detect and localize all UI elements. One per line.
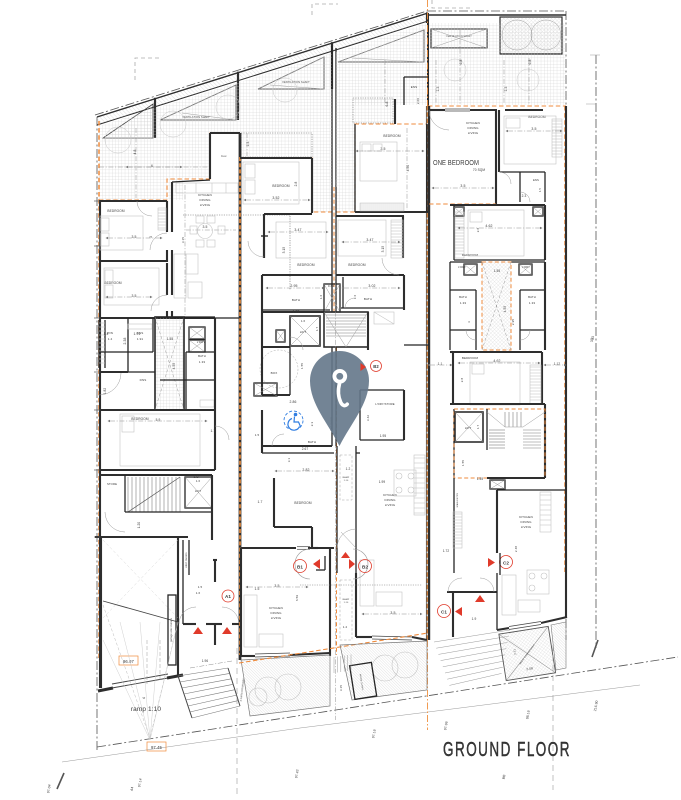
svg-text:1.91: 1.91: [134, 332, 141, 336]
svg-text:1.1: 1.1: [438, 362, 443, 366]
svg-text:GROUND FLOOR: GROUND FLOOR: [443, 739, 571, 761]
svg-text:3.5: 3.5: [460, 184, 465, 188]
svg-text:1.7: 1.7: [476, 425, 480, 430]
svg-text:2.95: 2.95: [290, 284, 297, 288]
svg-text:1.12: 1.12: [554, 362, 561, 366]
svg-text:BEDROOM: BEDROOM: [383, 134, 400, 138]
svg-text:3.15: 3.15: [181, 237, 185, 243]
svg-text:1.33: 1.33: [199, 360, 205, 364]
svg-text:A4: A4: [130, 786, 135, 791]
svg-text:RAMP: RAMP: [343, 476, 350, 479]
svg-text:4.50: 4.50: [406, 165, 410, 172]
svg-text:ramp 1:10: ramp 1:10: [131, 706, 161, 713]
svg-text:1.55: 1.55: [477, 477, 484, 481]
svg-text:1.2: 1.2: [346, 467, 351, 471]
svg-text:BOX: BOX: [271, 371, 278, 375]
svg-text:BATH: BATH: [459, 295, 467, 299]
svg-text:4.62: 4.62: [485, 224, 492, 228]
svg-text:1.2: 1.2: [343, 625, 348, 629]
svg-text:1.55: 1.55: [167, 337, 174, 341]
svg-text:DINING: DINING: [384, 498, 396, 502]
svg-text:3.5: 3.5: [202, 225, 207, 229]
svg-text:3.5: 3.5: [131, 235, 136, 239]
svg-text:1.95: 1.95: [380, 434, 387, 438]
svg-text:BEDROOM: BEDROOM: [107, 209, 124, 213]
svg-text:elect meters: elect meters: [184, 552, 188, 568]
svg-text:1.6: 1.6: [196, 591, 201, 595]
svg-text:6.8: 6.8: [385, 101, 389, 106]
svg-text:6.59: 6.59: [295, 595, 299, 601]
svg-text:1.3: 1.3: [504, 86, 508, 91]
svg-text:1:10: 1:10: [344, 602, 349, 604]
svg-text:1:10: 1:10: [344, 480, 349, 482]
svg-text:3: 3: [467, 321, 471, 323]
svg-text:3.15: 3.15: [381, 246, 385, 253]
svg-text:4.55: 4.55: [503, 306, 507, 313]
svg-text:6: 6: [151, 164, 153, 168]
svg-text:2.8: 2.8: [460, 378, 464, 383]
svg-text:DINING: DINING: [467, 126, 479, 130]
svg-text:4.8: 4.8: [133, 149, 137, 154]
svg-text:96.97: 96.97: [123, 659, 135, 664]
svg-text:BATH: BATH: [308, 440, 316, 444]
svg-text:2.38: 2.38: [123, 337, 127, 344]
svg-text:3.42: 3.42: [366, 415, 370, 421]
svg-text:KITCHEN: KITCHEN: [519, 515, 533, 519]
svg-text:33: 33: [590, 338, 594, 342]
svg-text:6.8: 6.8: [459, 59, 463, 64]
svg-text:LIVING: LIVING: [468, 131, 479, 135]
svg-text:DINING: DINING: [199, 198, 211, 202]
svg-text:LIVING: LIVING: [385, 503, 396, 507]
svg-text:BEDROOM: BEDROOM: [528, 115, 545, 119]
svg-text:LIFT: LIFT: [465, 426, 472, 430]
svg-text:3.02: 3.02: [368, 284, 375, 288]
svg-text:B2: B2: [362, 565, 368, 570]
svg-text:DNS: DNS: [140, 378, 147, 382]
svg-text:2.3: 2.3: [522, 194, 527, 198]
svg-text:3.5: 3.5: [390, 611, 395, 615]
svg-text:1.6: 1.6: [353, 295, 357, 300]
svg-text:3.52: 3.52: [272, 196, 279, 200]
svg-text:C2: C2: [503, 561, 509, 566]
svg-text:ONE BEDROOM: ONE BEDROOM: [433, 160, 479, 167]
svg-text:1.5: 1.5: [538, 188, 542, 193]
svg-text:L'DRY: L'DRY: [197, 340, 205, 344]
svg-text:1.5: 1.5: [198, 585, 203, 589]
svg-text:1.55: 1.55: [293, 310, 300, 314]
svg-text:BEDROOM: BEDROOM: [272, 184, 289, 188]
svg-text:2.48: 2.48: [514, 546, 518, 552]
svg-text:1.55: 1.55: [494, 269, 501, 273]
svg-text:1.5: 1.5: [254, 587, 259, 591]
svg-text:1.7: 1.7: [315, 327, 319, 332]
svg-text:1.9: 1.9: [472, 617, 477, 621]
svg-text:B1: B1: [297, 565, 303, 570]
svg-text:1.20: 1.20: [137, 522, 141, 529]
svg-text:1.7: 1.7: [210, 429, 215, 433]
svg-text:3.47: 3.47: [294, 228, 301, 232]
svg-text:2.86: 2.86: [290, 400, 297, 404]
svg-text:L'DRY: L'DRY: [458, 265, 466, 269]
svg-text:BEDROOM: BEDROOM: [462, 253, 479, 257]
svg-text:BATH: BATH: [364, 297, 372, 301]
svg-text:2.82: 2.82: [302, 468, 309, 472]
svg-text:KITCHEN: KITCHEN: [198, 193, 212, 197]
svg-text:97.45: 97.45: [151, 745, 163, 750]
svg-text:BATH: BATH: [292, 298, 300, 302]
svg-text:0.84: 0.84: [328, 284, 334, 288]
svg-text:1.8: 1.8: [193, 475, 198, 479]
svg-text:2.67: 2.67: [302, 447, 309, 451]
svg-text:1.5: 1.5: [255, 433, 260, 437]
svg-text:MAIN ENTRY: MAIN ENTRY: [456, 492, 459, 507]
svg-text:6.8: 6.8: [528, 59, 532, 64]
svg-text:L'DRY: L'DRY: [522, 265, 530, 269]
svg-text:4.55: 4.55: [172, 363, 176, 370]
svg-text:LIVING: LIVING: [271, 616, 282, 620]
svg-text:BEDROOM: BEDROOM: [297, 263, 314, 267]
svg-text:1.55: 1.55: [300, 363, 304, 369]
svg-text:L'DRY/STORE: L'DRY/STORE: [375, 402, 394, 406]
svg-text:1.6: 1.6: [319, 295, 323, 300]
svg-text:A1: A1: [225, 594, 231, 599]
svg-text:1.4: 1.4: [103, 332, 108, 336]
svg-text:B2: B2: [373, 364, 379, 369]
svg-text:4.62: 4.62: [493, 359, 500, 363]
svg-text:1.6: 1.6: [196, 479, 201, 483]
svg-text:1.96: 1.96: [202, 659, 209, 663]
svg-text:3.15: 3.15: [339, 685, 343, 691]
svg-text:70 SQM: 70 SQM: [473, 168, 486, 172]
svg-text:1.33: 1.33: [529, 301, 535, 305]
svg-text:1.82: 1.82: [103, 388, 107, 395]
svg-text:1.3: 1.3: [246, 141, 250, 146]
svg-text:DINING: DINING: [520, 520, 532, 524]
svg-text:BATH: BATH: [528, 295, 536, 299]
svg-text:STORE: STORE: [107, 482, 117, 486]
svg-text:1.6: 1.6: [301, 319, 306, 323]
svg-text:BATH: BATH: [198, 354, 206, 358]
svg-text:box: box: [221, 154, 227, 158]
svg-text:1.72: 1.72: [443, 549, 450, 553]
svg-text:BEDROOM: BEDROOM: [294, 501, 311, 505]
svg-text:garage elec meters: garage elec meters: [169, 617, 173, 642]
svg-text:BEDROOM: BEDROOM: [462, 356, 479, 360]
svg-text:BEDROOM: BEDROOM: [348, 263, 365, 267]
svg-text:ENS: ENS: [533, 178, 539, 182]
svg-text:3.5: 3.5: [131, 294, 136, 298]
svg-text:LIVING: LIVING: [521, 525, 532, 529]
svg-text:LIFT: LIFT: [195, 489, 201, 493]
svg-text:KITCHEN: KITCHEN: [383, 493, 397, 497]
svg-text:1.33: 1.33: [460, 301, 466, 305]
svg-text:LIFT: LIFT: [300, 330, 307, 334]
svg-text:2.06: 2.06: [416, 98, 420, 104]
svg-text:2.8: 2.8: [294, 182, 298, 187]
svg-text:KITCHEN: KITCHEN: [466, 121, 480, 125]
svg-text:2.95: 2.95: [511, 319, 515, 325]
svg-text:1.91: 1.91: [137, 337, 143, 341]
svg-text:1.99: 1.99: [379, 480, 386, 484]
svg-text:LIVING: LIVING: [200, 203, 211, 207]
svg-text:ENS: ENS: [411, 85, 417, 89]
svg-text:1.3: 1.3: [436, 86, 440, 91]
svg-text:3.1: 3.1: [287, 458, 291, 463]
svg-text:2.3: 2.3: [310, 422, 314, 427]
svg-text:RAMP: RAMP: [343, 598, 350, 601]
svg-text:DINING: DINING: [270, 611, 282, 615]
svg-text:1.4: 1.4: [108, 337, 113, 341]
svg-text:3.5: 3.5: [274, 584, 279, 588]
svg-text:3: 3: [149, 236, 153, 238]
svg-text:1.55: 1.55: [461, 460, 465, 466]
svg-text:5.9: 5.9: [156, 418, 161, 422]
svg-text:KITCHEN: KITCHEN: [269, 606, 283, 610]
svg-text:C1: C1: [441, 610, 447, 615]
svg-text:3.47: 3.47: [366, 238, 373, 242]
svg-text:1.7: 1.7: [257, 500, 262, 504]
svg-text:3.15: 3.15: [282, 247, 286, 254]
svg-text:3.5: 3.5: [531, 127, 536, 131]
svg-text:3.5: 3.5: [380, 147, 385, 151]
